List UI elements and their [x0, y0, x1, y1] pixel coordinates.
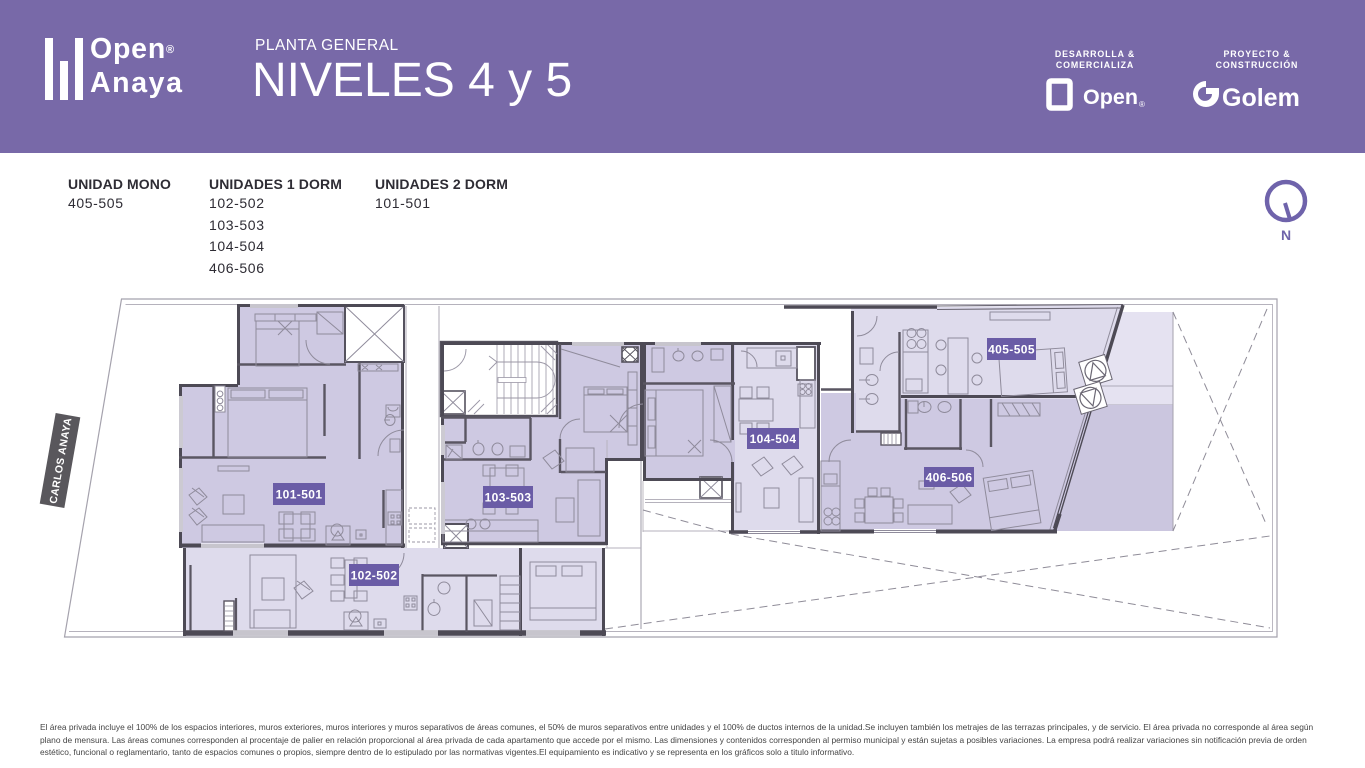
svg-text:102-502: 102-502	[351, 569, 398, 583]
svg-text:406-506: 406-506	[926, 471, 973, 485]
svg-text:103-503: 103-503	[485, 491, 532, 505]
svg-text:104-504: 104-504	[750, 432, 797, 446]
svg-text:405-505: 405-505	[988, 343, 1035, 357]
svg-text:101-501: 101-501	[276, 488, 323, 502]
svg-text:N: N	[1281, 227, 1291, 243]
